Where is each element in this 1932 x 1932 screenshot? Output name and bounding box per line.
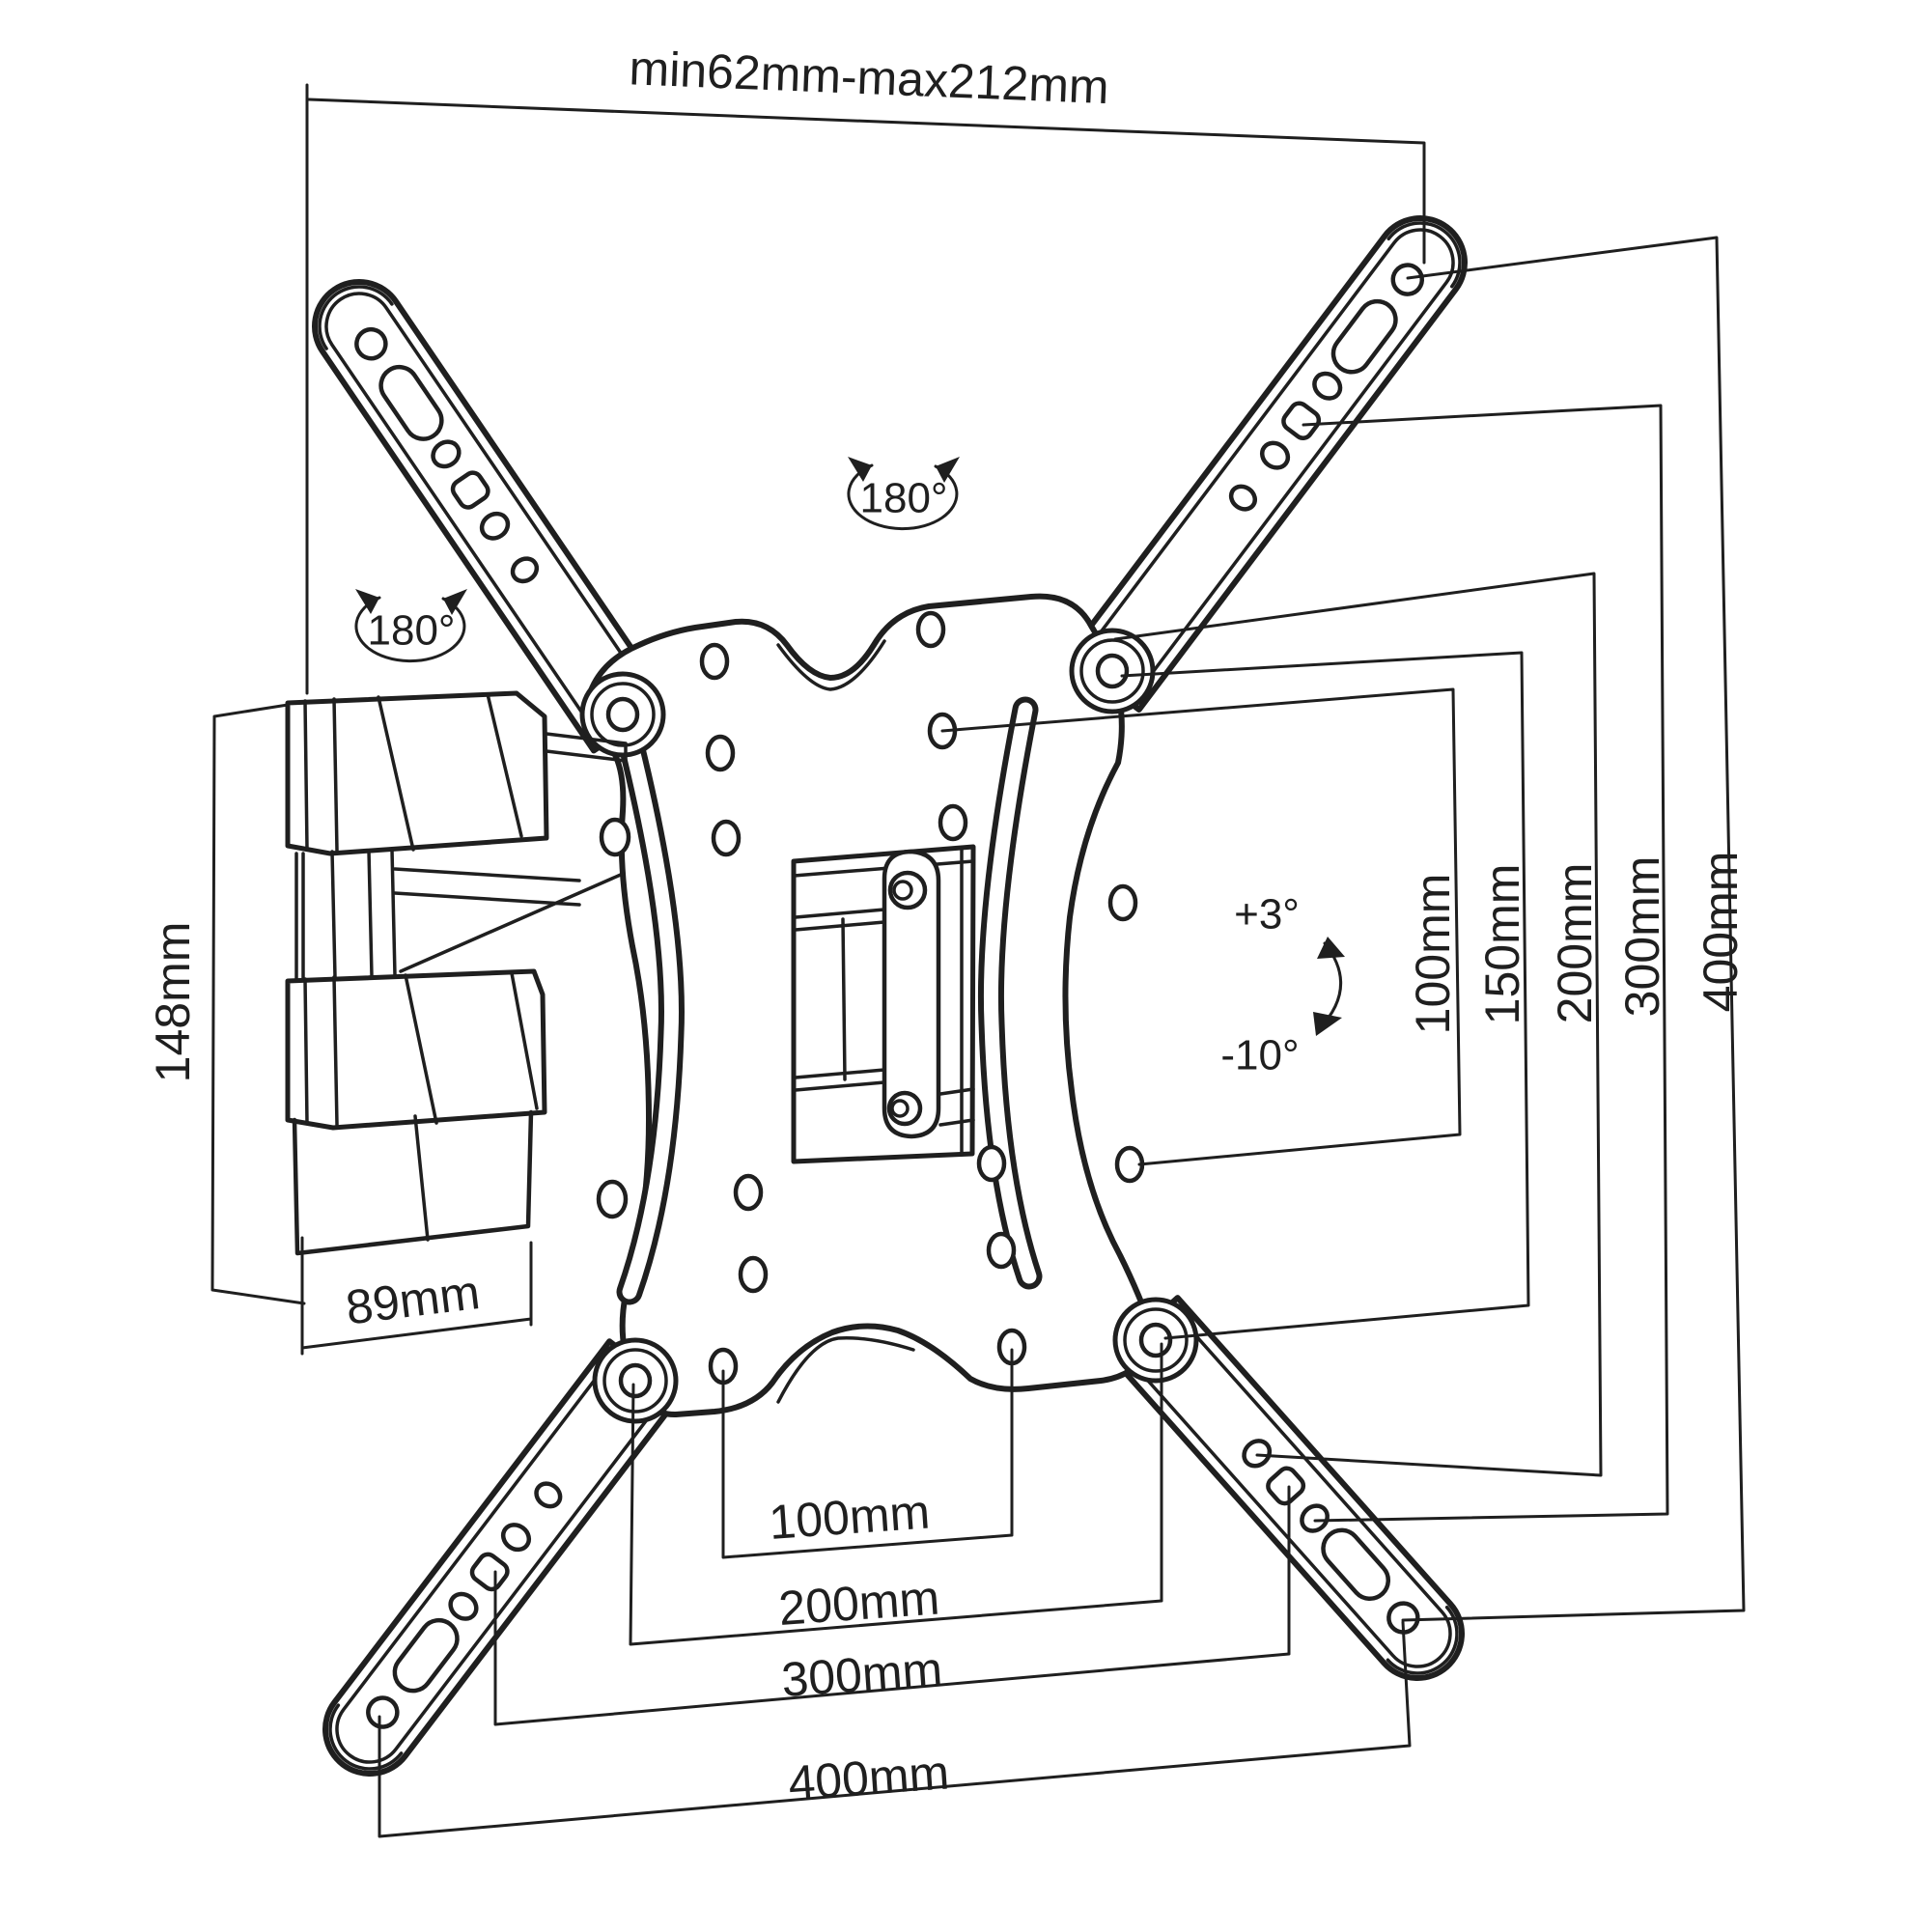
dimension-arm-depth: 89mm <box>302 1238 531 1354</box>
wall-mount-diagram: min62mm-max212mm 100mm 150mm 200mm 300mm… <box>0 0 1932 1932</box>
pivot-screw-bottom <box>889 1093 920 1124</box>
dimension-arm-height: 148mm <box>146 705 304 1303</box>
pivot-bottom-right <box>1115 1300 1196 1381</box>
dimension-label: 300mm <box>780 1641 944 1706</box>
dimension-label: 400mm <box>787 1745 951 1809</box>
pivot-top-right <box>1072 630 1153 712</box>
wall-arm-assembly <box>288 693 626 1253</box>
dimension-label: 100mm <box>768 1484 932 1549</box>
arrowhead <box>1313 1012 1342 1036</box>
annotation-swivel-left: 180° <box>355 589 467 661</box>
dimension-top-width: min62mm-max212mm <box>307 41 1424 693</box>
rotation-label: 180° <box>367 607 455 655</box>
dimension-label: 300mm <box>1615 856 1669 1018</box>
diagram-page: min62mm-max212mm 100mm 150mm 200mm 300mm… <box>0 0 1932 1932</box>
dimension-label: 148mm <box>146 922 200 1083</box>
dimension-label: 150mm <box>1475 864 1529 1025</box>
rotation-label: 180° <box>859 475 947 522</box>
tilt-down-label: -10° <box>1220 1032 1299 1079</box>
lower-block <box>288 971 545 1128</box>
tilt-up-label: +3° <box>1234 891 1300 938</box>
dimension-label: 200mm <box>1548 863 1602 1024</box>
tilt-bracket <box>794 847 973 1162</box>
arrowhead <box>1317 937 1345 959</box>
pivot-bottom-left <box>595 1340 676 1421</box>
dimension-label: 400mm <box>1694 852 1748 1013</box>
annotation-swivel-top: 180° <box>848 457 960 529</box>
dimension-top-width-label: min62mm-max212mm <box>629 41 1110 114</box>
annotation-tilt: +3° -10° <box>1220 891 1345 1079</box>
dimension-right-150mm: 150mm <box>1122 653 1529 1338</box>
dimension-label: 89mm <box>343 1265 483 1335</box>
dimension-label: 100mm <box>1406 874 1460 1035</box>
dimension-label: 200mm <box>777 1570 941 1635</box>
